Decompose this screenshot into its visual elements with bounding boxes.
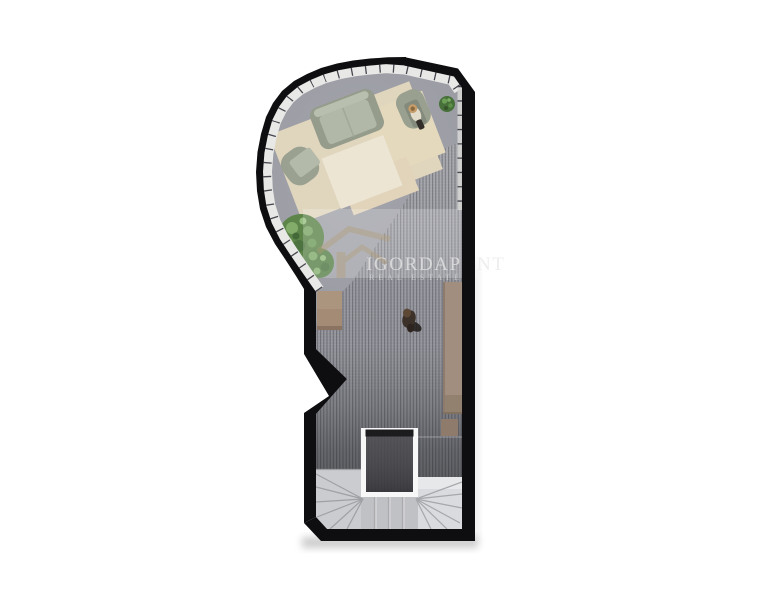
svg-text:IGORDAPUNT: IGORDAPUNT [366, 254, 506, 275]
svg-text:REAL ESTATE: REAL ESTATE [369, 273, 463, 282]
